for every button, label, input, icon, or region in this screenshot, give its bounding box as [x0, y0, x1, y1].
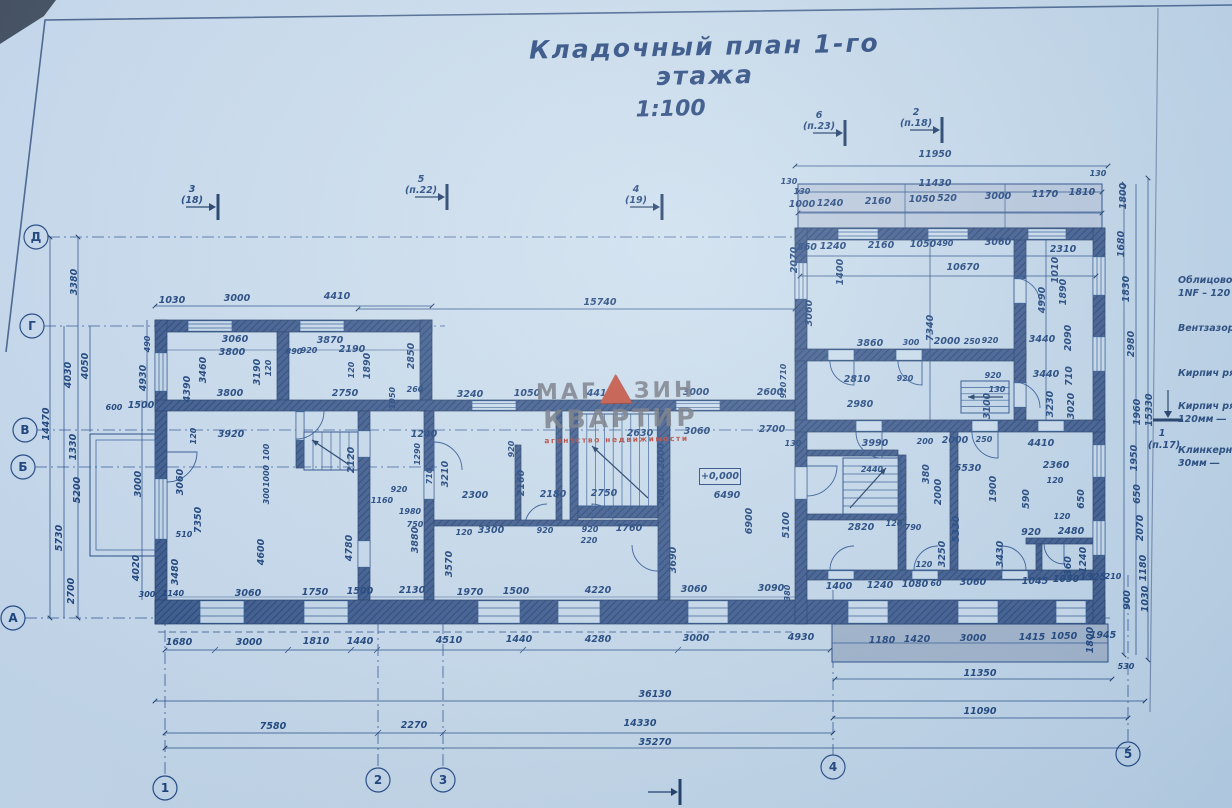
dim-label: 6490	[714, 490, 741, 501]
dim-label: 2750	[332, 388, 359, 399]
dim-label: 4510	[435, 635, 463, 646]
material-note: Вентзазор	[1178, 323, 1232, 334]
dim-label: 3000	[224, 293, 251, 304]
dim-label: 250	[964, 337, 981, 346]
dim-label: 900	[1122, 590, 1133, 610]
section-arrow-icon	[836, 129, 843, 137]
dim-label: 1240	[867, 580, 894, 591]
axis-label-5: 5	[1124, 747, 1132, 761]
dim-label: 1050	[388, 386, 397, 409]
dim-label: 10670	[946, 262, 979, 273]
section-sheet-ref: (18)	[181, 195, 203, 206]
dim-label: 2300	[462, 490, 489, 501]
section-sheet-ref: (п.17)	[1148, 440, 1180, 451]
window-icon	[155, 479, 167, 539]
dim-label: 3060	[804, 299, 815, 326]
dim-label: 4990	[1037, 286, 1048, 314]
dim-label: 120	[886, 519, 903, 528]
dim-label: 7350	[193, 506, 204, 533]
axis-label-А: А	[8, 611, 18, 625]
dim-label: 3000	[236, 637, 263, 648]
dim-label: 4600	[256, 538, 267, 566]
dim-label: 15330	[1144, 393, 1155, 426]
axis-label-4: 4	[829, 760, 837, 774]
dim-label: 1400	[835, 258, 846, 285]
door-opening	[856, 421, 882, 431]
dim-label: 3690	[668, 546, 679, 573]
section-arrow-icon	[671, 788, 678, 796]
dim-label: 130	[1090, 169, 1107, 178]
dim-label: 2700	[759, 424, 786, 435]
dim-label: 120	[189, 427, 198, 444]
dim-label: 1945	[1090, 630, 1117, 641]
dim-label: 1180	[869, 635, 896, 646]
material-note: Кирпич ря	[1178, 401, 1232, 412]
dim-label: 36130	[638, 689, 671, 700]
dim-label: 3800	[217, 388, 244, 399]
dim-label: 3300	[478, 525, 505, 536]
dim-label: 590	[1021, 489, 1032, 509]
dim-label: 11350	[963, 668, 996, 679]
dim-label: 920	[391, 485, 408, 494]
section-marker	[648, 779, 680, 805]
dim-label: 15740	[583, 297, 616, 308]
door-opening	[828, 571, 854, 579]
watermark: МАГ ЗИН КВАРТИР агентство недвижимости	[542, 373, 689, 446]
dim-label: 1810	[1069, 187, 1096, 198]
dim-label: 300	[903, 338, 920, 347]
section-marker-3: 3(18)	[181, 184, 218, 220]
window-icon	[1028, 229, 1066, 239]
dim-label: 1030	[159, 295, 186, 306]
dim-label: 5200	[72, 476, 83, 503]
dim-label: 3210	[440, 460, 451, 487]
material-annotations: Облицовоч1NF – 120ВентзазорКирпич ряКирп…	[1178, 275, 1232, 469]
dim-label: 1400	[826, 581, 853, 592]
dim-label: 200	[917, 437, 934, 446]
dim-label: 3920	[218, 429, 245, 440]
dim-label: 5730	[54, 524, 65, 551]
dim-label: 5100	[781, 511, 792, 538]
material-note: 120мм ―	[1178, 414, 1227, 425]
dim-label: 260	[407, 385, 424, 394]
dim-label: 130	[781, 177, 798, 186]
dim-label: 360	[1063, 556, 1074, 576]
dim-label: 650	[1132, 484, 1143, 504]
dim-label: 4050	[80, 352, 91, 380]
door-opening	[1014, 383, 1026, 407]
dim-label: 1415	[1019, 632, 1046, 643]
dim-label: 2130	[399, 585, 426, 596]
window-icon	[155, 353, 167, 391]
dim-label: 300	[262, 487, 271, 504]
watermark-triangle-icon	[600, 374, 633, 404]
dim-label: 1240	[411, 429, 438, 440]
material-note: 1NF – 120	[1178, 288, 1231, 299]
door-swing-arc	[830, 546, 854, 570]
dim-label: 1500	[347, 586, 374, 597]
dim-label: 3000	[960, 633, 987, 644]
dim-label: 2980	[847, 399, 874, 410]
window-icon	[688, 601, 728, 623]
dim-label: 1500	[128, 400, 155, 411]
dim-label: 3230	[1045, 390, 1056, 417]
dim-label: 7580	[260, 721, 287, 732]
dim-label: 3440	[1033, 369, 1060, 380]
section-sheet-ref: (19)	[625, 195, 647, 206]
dim-label: 14330	[623, 718, 656, 729]
porch-outline	[90, 434, 155, 556]
section-number: 5	[418, 174, 425, 185]
dim-label: 3060	[222, 334, 249, 345]
dim-label: 14470	[41, 407, 52, 440]
dim-label: 2160	[516, 469, 527, 496]
dim-label: 920	[982, 336, 999, 345]
dim-label: 3060	[175, 468, 186, 495]
dim-label: 1045	[1022, 576, 1049, 587]
section-arrow-icon	[1164, 411, 1172, 418]
dim-label: 1000	[789, 199, 816, 210]
material-note: Облицовоч	[1178, 275, 1232, 286]
dim-label: 920	[582, 525, 599, 534]
dim-label: 2000	[934, 336, 961, 347]
dim-label: 4280	[584, 634, 612, 645]
dim-label: 3020	[1066, 392, 1077, 419]
stair-direction-line	[312, 440, 348, 464]
dim-label: 3250	[937, 540, 948, 567]
dim-label: 2000	[933, 478, 944, 505]
door-opening	[1014, 279, 1026, 303]
door-opening	[972, 421, 998, 431]
dim-label: 1800	[1118, 182, 1129, 209]
watermark-text-right: ЗИН	[634, 381, 696, 402]
dim-label: 600	[106, 403, 123, 412]
dim-label: 2070	[789, 246, 800, 273]
dim-label: 2000	[656, 442, 667, 469]
dim-label: 1180	[1138, 554, 1149, 581]
window-icon	[958, 601, 998, 623]
dim-label: 1890	[362, 352, 373, 379]
dim-label: 220	[581, 536, 598, 545]
dim-label: 2070	[1135, 514, 1146, 541]
dim-label: 4930	[787, 632, 815, 643]
door-opening	[358, 431, 370, 457]
section-arrow-icon	[209, 203, 216, 211]
dim-label: 120	[456, 528, 473, 537]
dim-label: 2750	[591, 488, 618, 499]
dim-label: 1290	[413, 442, 422, 465]
material-note: 30мм ―	[1178, 458, 1220, 469]
dim-label: 920	[507, 440, 516, 457]
dim-label: 920	[985, 371, 1002, 380]
dim-label: 920	[779, 381, 788, 398]
dim-label: 3090	[758, 583, 785, 594]
elevation-mark: +0,000	[699, 468, 741, 485]
dim-label: 3990	[862, 438, 889, 449]
door-opening	[795, 467, 807, 499]
dim-label: 4390	[182, 375, 193, 403]
dim-label: 120	[1054, 512, 1071, 521]
dim-label: 1980	[399, 507, 422, 516]
dim-label: 1440	[506, 634, 533, 645]
dim-label: 3000	[133, 470, 144, 497]
dim-label: 120	[264, 359, 273, 376]
dim-label: 200	[657, 489, 666, 506]
window-icon	[928, 229, 968, 239]
dim-label: 3060	[235, 588, 262, 599]
dim-label: 1440	[347, 636, 374, 647]
dim-label: 2160	[868, 240, 895, 251]
dim-label: 2360	[1043, 460, 1070, 471]
dim-label: 5330	[951, 515, 962, 542]
dim-label: 1170	[1032, 189, 1059, 200]
dim-label: 710	[1064, 366, 1075, 386]
dim-label: 4020	[131, 554, 142, 582]
dim-label: 1950	[1129, 444, 1140, 471]
dim-label: 380	[921, 464, 932, 484]
dim-label: 920	[537, 526, 554, 535]
dim-label: 11430	[918, 178, 951, 189]
dim-label: 2440	[861, 465, 884, 474]
window-icon	[478, 601, 520, 623]
door-opening	[912, 571, 938, 579]
door-swing-arc	[807, 466, 837, 496]
window-icon	[304, 601, 348, 623]
dim-label: 1890	[1058, 278, 1069, 305]
dim-label: 130	[785, 439, 802, 448]
dim-label: 4930	[138, 364, 149, 392]
window-icon	[200, 601, 244, 623]
section-sheet-ref: (п.23)	[803, 121, 835, 132]
dim-label: 3800	[219, 347, 246, 358]
dim-label: 1240	[817, 198, 844, 209]
door-opening	[896, 350, 922, 360]
dim-label: 4410	[323, 291, 351, 302]
dim-label: 2000	[942, 435, 969, 446]
dim-label: 1330	[68, 433, 79, 460]
watermark-line2: КВАРТИР	[543, 403, 689, 435]
window-icon	[1093, 337, 1105, 371]
dim-label: 920	[897, 374, 914, 383]
dim-label: 1680	[1116, 230, 1127, 257]
material-note: Клинкерн	[1178, 445, 1232, 456]
door-opening	[828, 350, 854, 360]
window-icon	[1093, 445, 1105, 477]
window-icon	[300, 321, 344, 331]
dim-label: 3060	[681, 584, 708, 595]
section-number: 1	[1159, 428, 1166, 439]
axis-label-В: В	[20, 423, 29, 437]
dim-label: 2160	[865, 196, 892, 207]
dim-label: 3060	[960, 577, 987, 588]
door-swing-arc	[1044, 544, 1064, 564]
dim-label: 11090	[963, 706, 996, 717]
drawing-title-block: Кладочный план 1-го этажа 1:100	[479, 27, 931, 125]
dim-label: 4410	[1027, 438, 1055, 449]
dim-label: 530	[1118, 662, 1135, 671]
dim-label: 1030	[1140, 585, 1151, 612]
dim-label: 380	[783, 584, 792, 601]
section-number: 3	[189, 184, 196, 195]
dim-label: 1080	[902, 579, 929, 590]
window-icon	[848, 601, 888, 623]
dim-label: 1900	[988, 475, 999, 502]
dim-label: 2270	[401, 720, 428, 731]
dim-label: 2090	[1063, 324, 1074, 351]
dim-label: 100	[262, 443, 271, 460]
dim-label: 3480	[170, 558, 181, 585]
dim-label: 3460	[198, 356, 209, 383]
dim-label: 1240	[820, 241, 847, 252]
dim-label: 1420	[904, 634, 931, 645]
window-icon	[188, 321, 232, 331]
dim-label: 710	[425, 467, 434, 484]
dim-label: 1960	[1132, 398, 1143, 425]
dim-label: 1160	[371, 496, 394, 505]
window-icon	[1056, 601, 1086, 623]
dim-label: 3000	[985, 191, 1012, 202]
dim-label: 520	[937, 193, 957, 204]
dim-label: 1760	[616, 523, 643, 534]
dim-label: 2700	[66, 577, 77, 604]
dim-label: 300	[139, 590, 156, 599]
dim-label: 510	[176, 530, 193, 539]
dim-label: 2810	[844, 374, 871, 385]
dim-label: 1970	[457, 587, 484, 598]
dim-label: 120	[1047, 476, 1064, 485]
dim-label: 4030	[63, 361, 74, 389]
dim-label: 490	[936, 239, 954, 248]
dim-label: 1750	[302, 587, 329, 598]
window-icon	[558, 601, 600, 623]
door-swing-arc	[632, 545, 658, 571]
watermark-line1: МАГ ЗИН	[542, 373, 688, 404]
dim-label: 130	[989, 385, 1006, 394]
dim-label: 4220	[584, 585, 612, 596]
dim-label: 3860	[857, 338, 884, 349]
dim-label: 1050	[909, 194, 936, 205]
dim-label: 3240	[457, 389, 484, 400]
dim-label: 920	[301, 346, 318, 355]
dim-label: 490	[143, 335, 152, 353]
dim-label: 2480	[1058, 526, 1085, 537]
axis-label-Г: Г	[28, 319, 36, 333]
dim-label: 710	[779, 363, 788, 380]
drawing-title: Кладочный план 1-го этажа	[479, 27, 930, 94]
dim-label: 4780	[344, 534, 355, 562]
dim-label: 920	[1021, 527, 1041, 538]
dim-label: 1240	[1078, 546, 1089, 573]
axis-label-Д: Д	[31, 230, 42, 244]
axis-label-Б: Б	[18, 460, 27, 474]
dim-label: 2120	[346, 446, 357, 473]
dim-label: 3060	[985, 237, 1012, 248]
section-arrow-icon	[438, 193, 445, 201]
section-arrow-icon	[653, 203, 660, 211]
dim-label: 3380	[69, 268, 80, 295]
dim-label: 3100	[982, 392, 993, 419]
section-sheet-ref: (п.22)	[405, 185, 437, 196]
blueprint-photo: 1195011430130130130180010001240216010505…	[0, 0, 1232, 808]
window-icon	[472, 401, 516, 410]
dim-label: 1050	[910, 239, 937, 250]
dim-label: 35270	[638, 737, 671, 748]
dim-label: 60	[930, 579, 942, 588]
dim-label: 2980	[1126, 330, 1137, 357]
dim-label: 2820	[848, 522, 875, 533]
dim-label: 3440	[1029, 334, 1056, 345]
dim-label: 11950	[918, 149, 951, 160]
watermark-text-left: МАГ	[536, 382, 598, 403]
section-number: 4	[632, 184, 640, 195]
dim-label: 790	[905, 523, 922, 532]
door-opening	[296, 412, 304, 440]
section-arrow-icon	[933, 126, 940, 134]
axis-label-2: 2	[374, 773, 382, 787]
dim-label: 2850	[406, 342, 417, 369]
dim-label: 6900	[744, 507, 755, 534]
dim-label: 3190	[252, 358, 263, 385]
dim-label: 3880	[410, 526, 421, 553]
dim-label: 1050	[1051, 631, 1078, 642]
axis-label-1: 1	[161, 781, 169, 795]
dim-label: 3430	[995, 540, 1006, 567]
door-opening	[1038, 421, 1064, 431]
dim-label: 2310	[1050, 244, 1077, 255]
dim-label: 1500	[503, 586, 530, 597]
dim-label: 5530	[955, 463, 982, 474]
dim-label: 860	[797, 242, 817, 253]
dim-label: 1000	[262, 464, 271, 487]
section-sheet-ref: (п.18)	[900, 118, 932, 129]
dim-label: 1830	[1121, 275, 1132, 302]
dim-label: 2180	[540, 489, 567, 500]
dim-label: 120	[916, 560, 933, 569]
axis-label-3: 3	[439, 773, 447, 787]
dim-label: 210	[1105, 572, 1122, 581]
dim-label: 130	[794, 187, 811, 196]
dim-label: 1810	[303, 636, 330, 647]
window-icon	[1093, 521, 1105, 555]
section-marker-4: 4(19)	[625, 184, 662, 220]
dim-label: 3000	[683, 633, 710, 644]
dim-label: 650	[1076, 489, 1087, 509]
dim-label: 1680	[166, 637, 193, 648]
dim-label: 250	[976, 435, 993, 444]
stair-arrow-icon	[968, 394, 974, 399]
dim-label: 3570	[444, 550, 455, 577]
window-icon	[838, 229, 878, 239]
dim-label: 1140	[162, 589, 185, 598]
door-opening	[358, 541, 370, 567]
dim-label: 120	[347, 361, 356, 378]
section-marker-5: 5(п.22)	[405, 174, 447, 210]
material-note: Кирпич ря	[1178, 368, 1232, 379]
